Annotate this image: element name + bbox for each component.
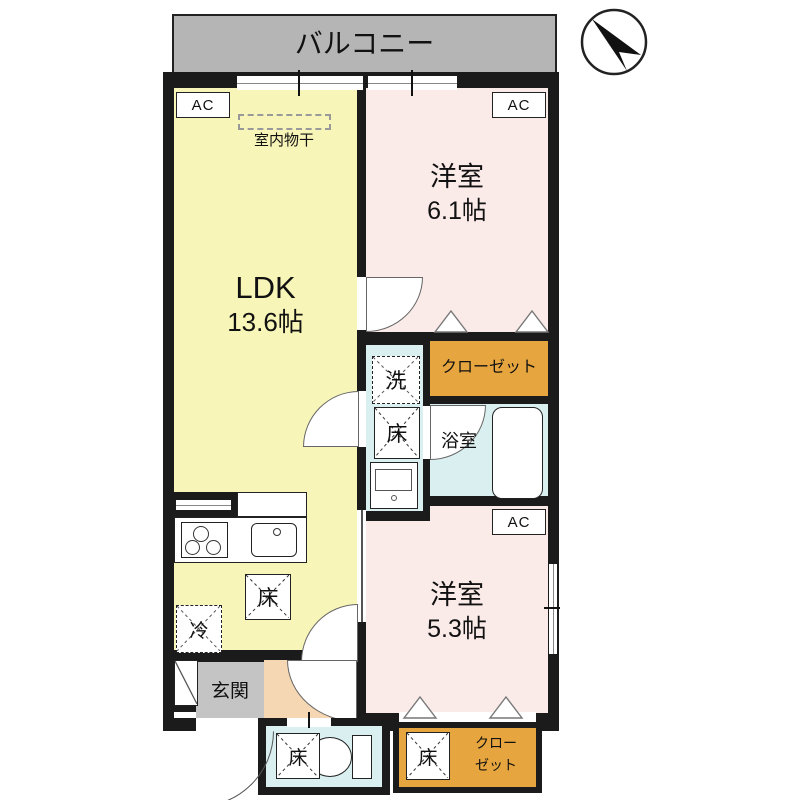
bathtub — [492, 407, 543, 499]
vanity — [370, 462, 418, 509]
entrance-door-gap — [196, 718, 258, 731]
kitchen-window — [176, 500, 231, 510]
ac-unit-bedroom2: AC — [492, 509, 546, 535]
north-arrow-icon — [578, 6, 650, 78]
floor-hatch-ldk: 床 — [245, 574, 291, 620]
ldk-window — [237, 76, 363, 90]
ldk-size: 13.6帖 — [174, 308, 357, 338]
drying-rod-icon — [238, 114, 331, 130]
bedroom1-name: 洋室 — [366, 160, 548, 194]
closet-bottom-label-1: クロー — [458, 734, 534, 752]
bedroom1-door-gap — [357, 277, 366, 330]
closet-top-label: クローゼット — [432, 355, 546, 381]
tick-mark — [298, 70, 300, 96]
floor-hatch-toilet: 床 — [276, 733, 320, 779]
ac-unit-bedroom1: AC — [492, 92, 546, 118]
folding-door-icon — [402, 695, 438, 719]
shoe-cabinet — [174, 660, 198, 706]
fridge-space: 冷 — [176, 605, 222, 653]
ldk-name: LDK — [174, 270, 357, 306]
faucet-icon — [273, 528, 281, 536]
genkan-step — [174, 712, 196, 718]
washer-space: 洗 — [372, 356, 420, 404]
kitchen-counter-top — [237, 492, 307, 517]
stove — [181, 522, 228, 558]
folding-door-icon — [488, 695, 524, 719]
bedroom2-window — [549, 564, 557, 654]
bedroom1-size: 6.1帖 — [366, 196, 548, 226]
floor-plan: バルコニー — [0, 0, 800, 800]
folding-door-icon — [514, 309, 550, 333]
genkan-label: 玄関 — [198, 680, 262, 704]
drying-label: 室内物干 — [229, 132, 339, 150]
kitchen-sink — [251, 523, 297, 557]
folding-door-icon — [433, 309, 469, 333]
ac-unit-ldk: AC — [176, 92, 230, 118]
tick-mark — [411, 70, 413, 96]
toilet-tank — [352, 735, 372, 779]
floor-hatch-washroom: 床 — [374, 407, 420, 459]
bath-label: 浴室 — [428, 430, 490, 452]
balcony-label: バルコニー — [174, 16, 555, 72]
sliding-door — [357, 510, 366, 622]
balcony-area: バルコニー — [172, 14, 557, 74]
floor-hatch-closet: 床 — [406, 732, 450, 780]
bedroom2-size: 5.3帖 — [366, 614, 548, 644]
closet-bottom-label-2: ゼット — [458, 756, 534, 774]
bedroom2-name: 洋室 — [366, 578, 548, 612]
room-ldk — [174, 88, 357, 650]
tick-mark — [308, 712, 310, 728]
